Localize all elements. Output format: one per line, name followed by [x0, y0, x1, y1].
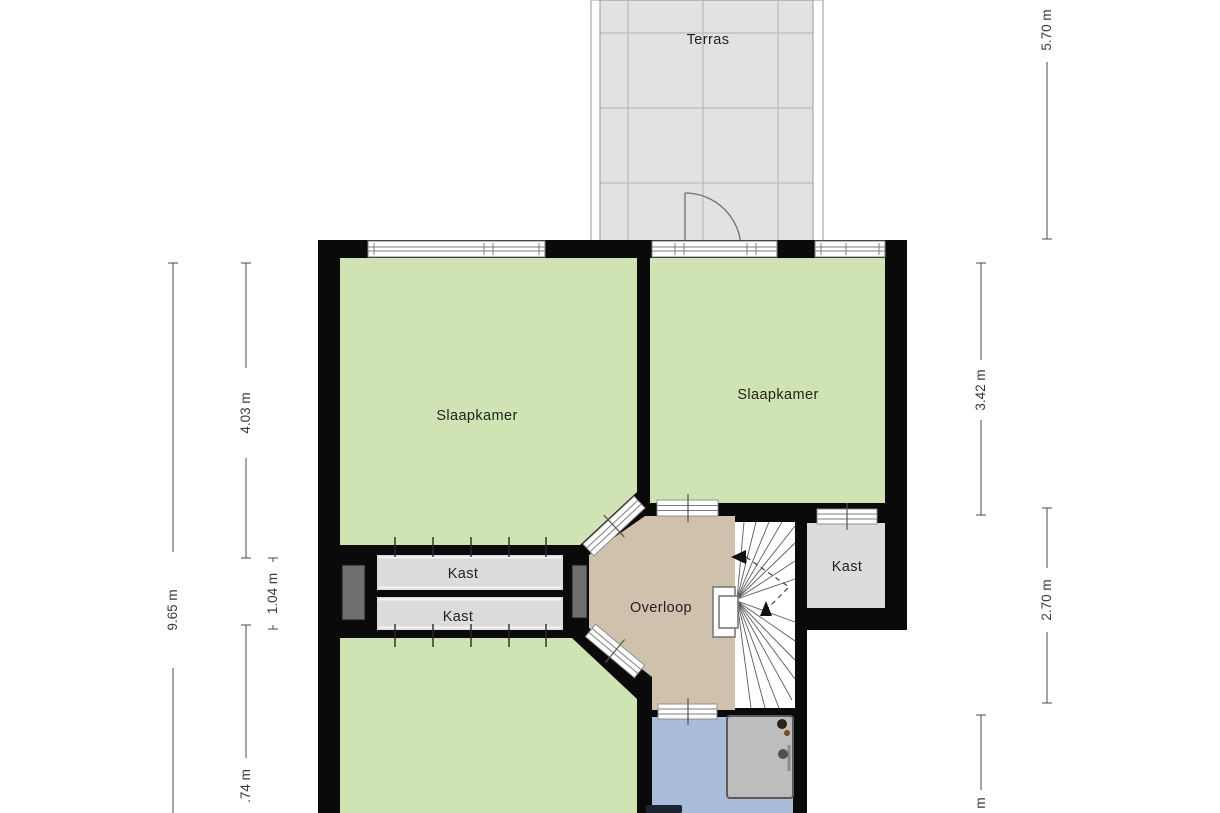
shower-drain	[778, 720, 787, 729]
room-bottom-left	[340, 638, 637, 813]
dim-left-bottom-label: .74 m	[238, 769, 253, 803]
dim-left-bedroom-label: 4.03 m	[238, 392, 253, 433]
dim-right-bottom-label: m	[973, 797, 988, 808]
dim-left-bedroom: 4.03 m	[238, 263, 253, 558]
terrace-door-opening	[652, 241, 777, 257]
terrace-wall-left	[591, 0, 600, 241]
room-slaapkamer-right	[650, 258, 885, 503]
shower-head	[784, 730, 790, 736]
dim-left-closet-label: 1.04 m	[265, 573, 280, 614]
stair-newel	[713, 587, 738, 637]
window-bedroom-right	[815, 241, 885, 257]
dim-right-middle: 2.70 m	[1039, 508, 1054, 703]
duct-center	[572, 565, 587, 618]
duct-left	[342, 565, 365, 620]
kast-upper-label: Kast	[448, 566, 479, 582]
terrace-wall-right	[813, 0, 823, 241]
shower-mixer	[778, 749, 788, 759]
dim-left-closet: 1.04 m	[265, 558, 280, 629]
slaapkamer-right-label: Slaapkamer	[737, 387, 818, 403]
dim-right-middle-label: 2.70 m	[1039, 579, 1054, 620]
dim-right-terrace: 5.70 m	[1039, 9, 1054, 239]
dim-right-bedroom: 3.42 m	[973, 263, 988, 515]
slaapkamer-left-label: Slaapkamer	[436, 408, 517, 424]
dim-left-outer: 9.65 m	[165, 263, 180, 813]
dim-right-terrace-label: 5.70 m	[1039, 9, 1054, 50]
room-slaapkamer-left	[340, 258, 637, 545]
kast-right-label: Kast	[832, 559, 863, 575]
bathroom-fixture-cutoff	[646, 805, 682, 813]
floorplan-canvas: Terras	[0, 0, 1220, 813]
overloop-label: Overloop	[630, 600, 692, 616]
dim-right-bottom: m	[973, 715, 988, 809]
floorplan-page: Terras	[0, 0, 1220, 813]
shower	[727, 716, 793, 798]
window-bedroom-left	[368, 241, 545, 257]
terrace: Terras	[591, 0, 823, 248]
dim-right-bedroom-label: 3.42 m	[973, 369, 988, 410]
terrace-label: Terras	[687, 32, 730, 48]
kast-lower-label: Kast	[443, 609, 474, 625]
dim-left-outer-label: 9.65 m	[165, 589, 180, 630]
dim-left-bottom: .74 m	[238, 625, 253, 803]
